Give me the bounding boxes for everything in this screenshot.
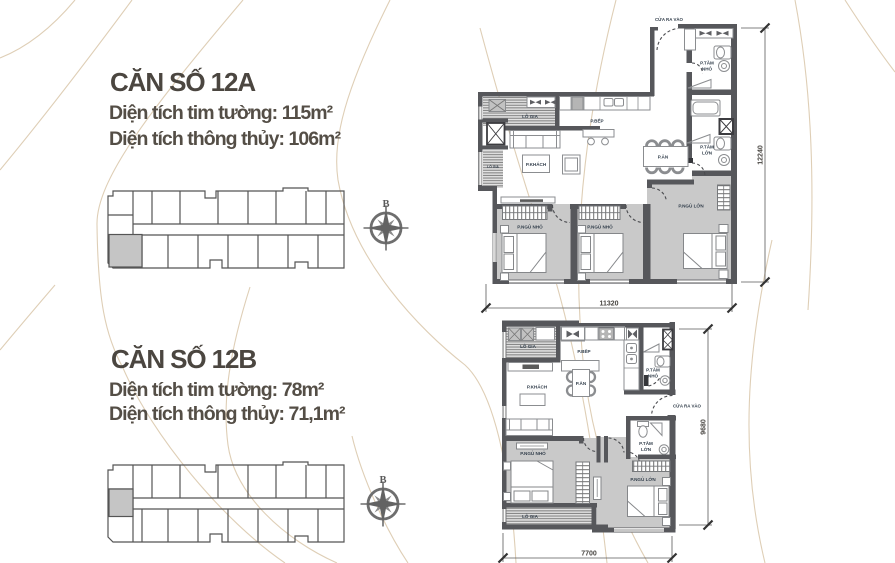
svg-text:P.ĂN: P.ĂN [576,380,587,386]
svg-text:LỚN: LỚN [641,445,652,452]
svg-text:9680: 9680 [701,419,708,435]
svg-text:LÔ GIA: LÔ GIA [487,164,499,169]
svg-text:LÔ GIA: LÔ GIA [522,512,539,519]
svg-text:P.KHÁCH: P.KHÁCH [527,384,548,390]
svg-text:P.NGỦ LỚN: P.NGỦ LỚN [678,202,704,209]
svg-text:12240: 12240 [758,145,765,165]
svg-text:NHỎ: NHỎ [648,373,659,379]
svg-text:LÔ GIA: LÔ GIA [522,112,539,119]
svg-text:P.TẮM: P.TẮM [700,143,714,150]
svg-text:P.BẾP: P.BẾP [590,118,603,124]
svg-text:LÔ GIA: LÔ GIA [520,342,537,349]
svg-text:P.TẮM: P.TẮM [639,439,653,446]
svg-text:P.NGỦ NHỎ: P.NGỦ NHỎ [517,224,543,230]
svg-text:CỬA RA VÀO: CỬA RA VÀO [673,404,702,409]
svg-text:7700: 7700 [581,551,597,558]
svg-text:LỚN: LỚN [702,149,713,156]
svg-text:CỬA RA VÀO: CỬA RA VÀO [655,17,684,22]
svg-text:P.NGỦ NHỎ: P.NGỦ NHỎ [587,224,613,230]
svg-text:P.ĂN: P.ĂN [658,154,669,160]
svg-text:P.BẾP: P.BẾP [577,348,590,354]
svg-text:P.NGỦ NHỎ: P.NGỦ NHỎ [520,450,546,456]
svg-text:P.KHÁCH: P.KHÁCH [526,161,547,167]
svg-text:P.NGỦ LỚN: P.NGỦ LỚN [630,475,656,482]
svg-text:NHỎ: NHỎ [702,66,713,72]
svg-text:11320: 11320 [599,301,618,308]
svg-text:P.TẮM: P.TẮM [646,366,660,373]
svg-text:P.TẮM: P.TẮM [700,59,714,66]
